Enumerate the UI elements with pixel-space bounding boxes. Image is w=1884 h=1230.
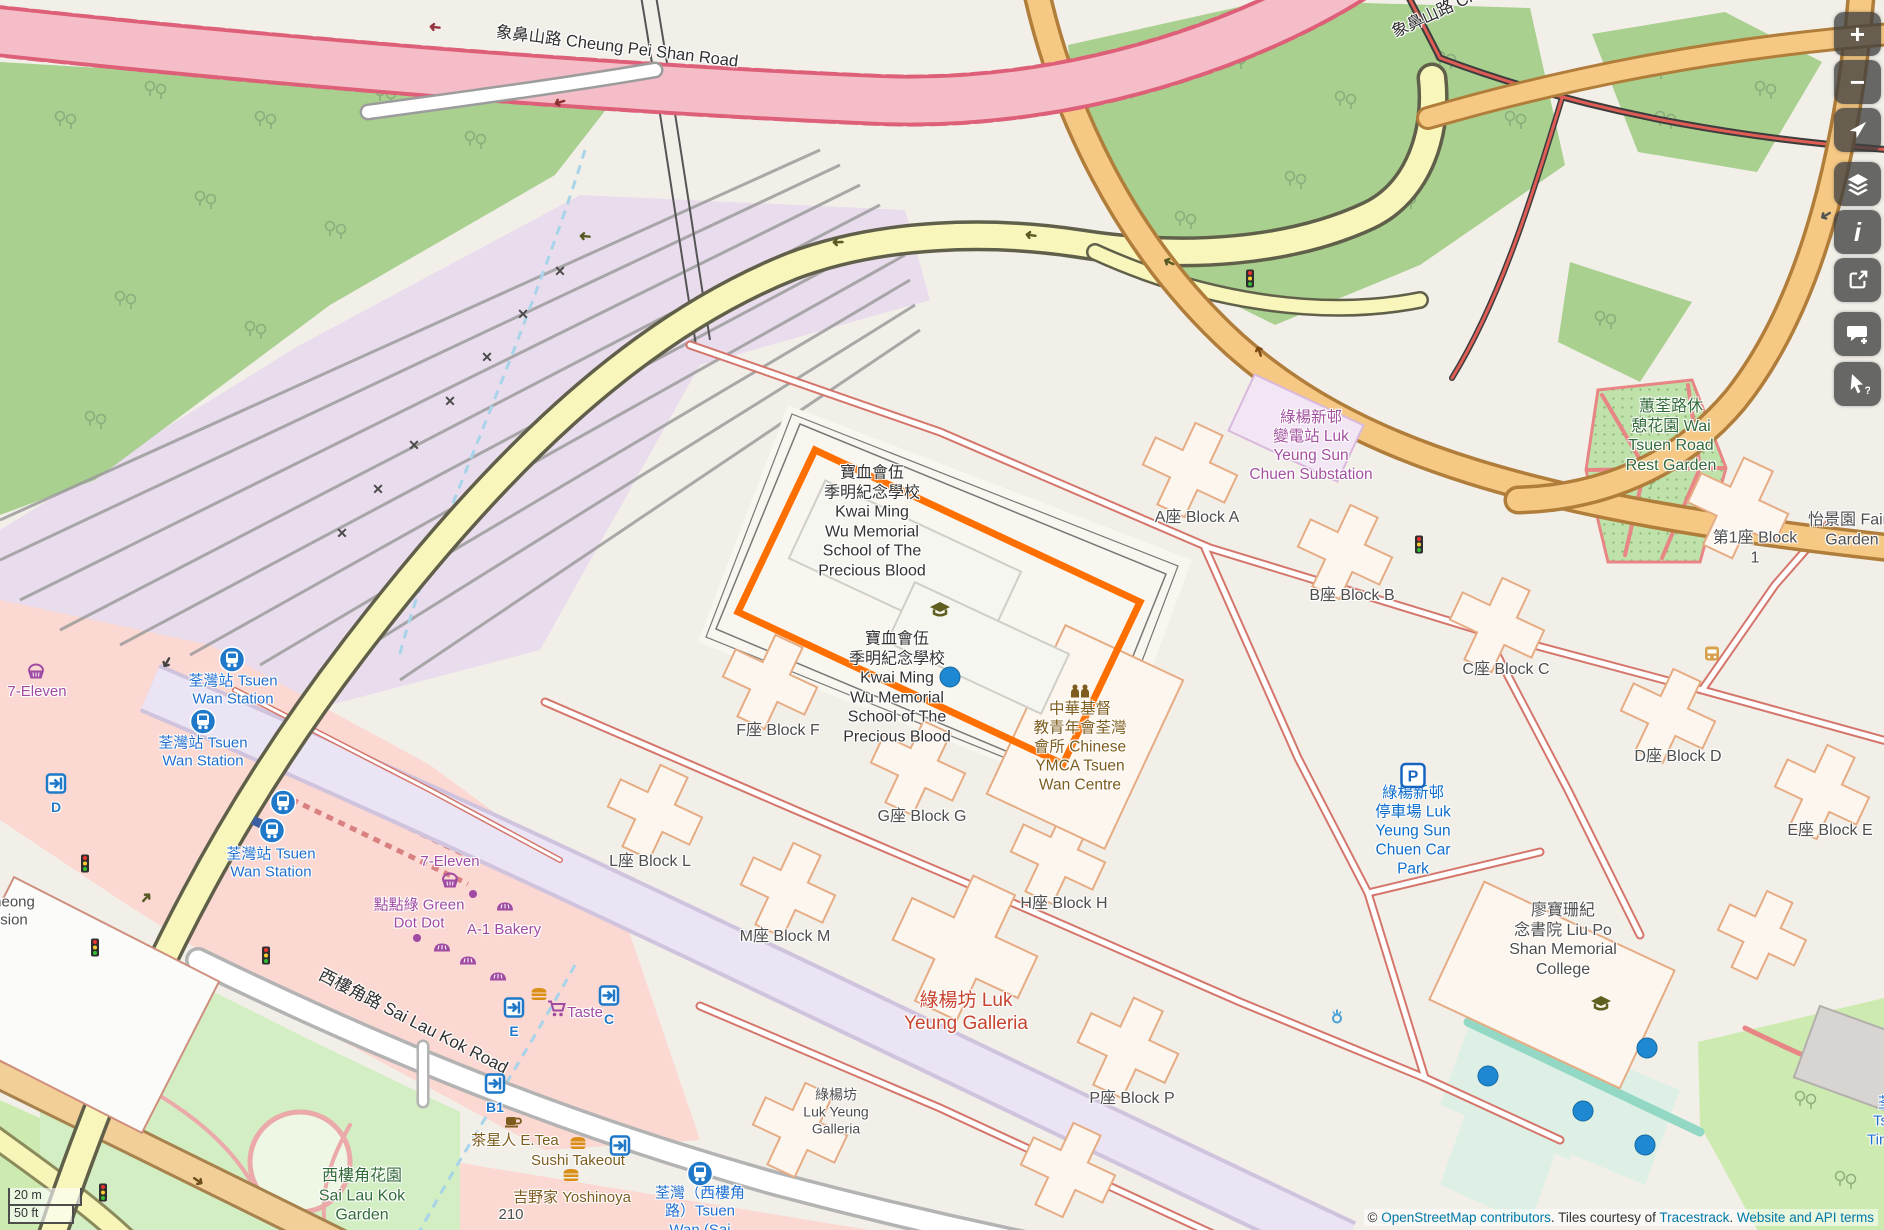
burger-icon: [569, 1136, 588, 1155]
label-yoshinoya: 吉野家 Yoshinoya: [513, 1189, 631, 1207]
label-block-1: 第1座 Block1: [1713, 528, 1797, 567]
label-a1-bakery: A-1 Bakery: [467, 921, 541, 939]
traffic-light-icon: [1415, 535, 1424, 559]
railway-station-icon: [219, 646, 246, 678]
oneway-arrow-icon: ➜: [579, 228, 592, 247]
railway-station-icon: [190, 708, 217, 740]
crossing-icon: ✕: [408, 437, 420, 455]
scale-metric: 20 m: [8, 1188, 82, 1206]
label-luk-yeung-galleria: 綠楊坊 LukYeung Galleria: [904, 989, 1028, 1035]
parking-icon: P: [1400, 762, 1427, 794]
traffic-light-icon: [81, 854, 90, 878]
oneway-arrow-icon: ➜: [1820, 207, 1833, 226]
attribution-middle: . Tiles courtesy of: [1551, 1210, 1660, 1225]
shop-dot-icon: [413, 934, 421, 942]
basket-icon: [26, 663, 46, 686]
label-block-g: G座 Block G: [878, 807, 967, 827]
label-ymca: 中華基督教青年會荃灣會所 ChineseYMCA TsuenWan Centre: [1033, 701, 1126, 796]
oneway-arrow-icon: ➜: [554, 94, 567, 113]
traffic-light-icon: [91, 938, 100, 962]
pitch-dot-icon: [1635, 1135, 1656, 1156]
label-block-h: H座 Block H: [1020, 894, 1107, 914]
pitch-dot-icon: [940, 667, 961, 688]
cart-icon: [546, 1000, 566, 1023]
label-sai-lau-kok-garden: 西樓角花園Sai Lau KokGarden: [319, 1167, 405, 1226]
crossing-icon: ✕: [481, 349, 493, 367]
pitch-dot-icon: [1637, 1038, 1658, 1059]
label-liu-po-shan-college: 廖寶珊紀念書院 Liu PoShan MemorialCollege: [1509, 901, 1617, 979]
label-luk-yeung-galleria-small: 綠楊坊Luk YeungGalleria: [803, 1086, 868, 1137]
label-block-c: C座 Block C: [1462, 660, 1549, 680]
label-car-park: 綠楊新邨停車場 LukYeung SunChuen CarPark: [1375, 785, 1451, 880]
label-block-l: L座 Block L: [609, 852, 691, 872]
label-house-210: 210: [498, 1206, 523, 1224]
scale-control: 20 m 50 ft: [8, 1188, 82, 1224]
svg-text:P: P: [1408, 769, 1419, 786]
label-seven-eleven-west: 7-Eleven: [7, 683, 66, 701]
label-school-label-mid: 寶血會伍季明紀念學校Kwai MingWu MemorialSchool of …: [843, 629, 951, 746]
oneway-arrow-icon: ➜: [832, 234, 845, 253]
label-block-d: D座 Block D: [1634, 747, 1721, 767]
osm-contributors-link[interactable]: OpenStreetMap contributors: [1381, 1210, 1551, 1225]
pitch-dot-icon: [1573, 1101, 1594, 1122]
bakery-icon: [432, 940, 452, 959]
label-e-tea: 茶星人 E.Tea: [471, 1132, 559, 1150]
fountain-icon: [1329, 1008, 1345, 1029]
info-button[interactable]: i: [1834, 210, 1881, 254]
query-features-button[interactable]: ?: [1834, 362, 1881, 406]
entrance-icon: D: [46, 773, 67, 799]
entrance-icon: C: [599, 985, 620, 1011]
oneway-arrow-icon: ➜: [140, 889, 153, 908]
zoom-in-button[interactable]: +: [1834, 12, 1881, 56]
bakery-icon: [458, 953, 478, 972]
share-button[interactable]: [1834, 258, 1881, 302]
openstreetmap-viewport[interactable]: 象鼻山路 Cheung Pei Shan Road象鼻山路 Cheun西樓角路 …: [0, 0, 1884, 1230]
label-seven-eleven-mid: 7-Eleven: [420, 853, 479, 871]
oneway-arrow-icon: ➜: [1025, 227, 1038, 246]
query-cursor-icon: ?: [1846, 372, 1870, 396]
zoom-out-button[interactable]: −: [1834, 60, 1881, 104]
navigation-arrow-icon: [1847, 119, 1869, 141]
entrance-icon: B1: [485, 1073, 506, 1099]
note-icon: [1846, 322, 1870, 346]
locate-button[interactable]: [1834, 108, 1881, 152]
attribution-copyright: ©: [1368, 1210, 1382, 1225]
oneway-arrow-icon: ➜: [192, 1172, 205, 1191]
label-substation: 綠楊新邨變電站 LukYeung SunChuen Substation: [1249, 409, 1372, 485]
label-block-p: P座 Block P: [1089, 1089, 1174, 1109]
attribution-sep: .: [1729, 1210, 1737, 1225]
people-icon: [1068, 684, 1092, 705]
station-square-icon: [253, 818, 262, 827]
oneway-arrow-icon: ➜: [429, 19, 442, 38]
label-wai-tsuen-rest-garden: 蕙荃路休憩花園 WaiTsuen RoadRest Garden: [1626, 397, 1717, 475]
label-block-m: M座 Block M: [740, 927, 831, 947]
cup-icon: [504, 1114, 522, 1134]
burger-icon: [530, 987, 549, 1006]
crossing-icon: ✕: [517, 306, 529, 324]
terms-link[interactable]: Website and API terms: [1737, 1210, 1874, 1225]
school-icon: [929, 601, 951, 623]
label-cut-mansion: heongsion: [0, 894, 35, 931]
label-tsuen-wan-station-1: 荃灣站 TsuenWan Station: [188, 673, 277, 710]
traffic-light-icon: [262, 946, 271, 970]
school-icon: [1590, 995, 1612, 1017]
label-tin-hau: 荃灣TsuenTin Hau: [1867, 1095, 1884, 1150]
oneway-arrow-icon: ➜: [1163, 254, 1176, 273]
railway-station-icon: [259, 817, 286, 849]
tracestrack-link[interactable]: Tracestrack: [1659, 1210, 1729, 1225]
bus-stop-icon: [1704, 646, 1720, 667]
oneway-arrow-icon: ➜: [161, 654, 174, 673]
burger-icon: [562, 1168, 581, 1187]
label-fairview-garden: 怡景園 FairvGarden: [1808, 510, 1884, 549]
basket-icon: [440, 872, 460, 895]
label-school-label-top: 寶血會伍季明紀念學校Kwai MingWu MemorialSchool of …: [818, 463, 926, 580]
label-block-b: B座 Block B: [1309, 586, 1394, 606]
shop-dot-icon: [469, 890, 477, 898]
crossing-icon: ✕: [372, 481, 384, 499]
crossing-icon: ✕: [336, 525, 348, 543]
entrance-icon: [610, 1135, 631, 1161]
scale-imperial: 50 ft: [8, 1206, 74, 1224]
add-note-button[interactable]: [1834, 312, 1881, 356]
pitch-dot-icon: [1478, 1066, 1499, 1087]
label-block-a: A座 Block A: [1155, 508, 1239, 528]
bakery-icon: [495, 899, 515, 918]
label-green-dot-dot: 點點綠 GreenDot Dot: [374, 897, 465, 934]
oneway-arrow-icon: ➜: [1253, 343, 1266, 362]
layers-icon: [1846, 172, 1870, 196]
label-block-e: E座 Block E: [1787, 821, 1872, 841]
crossing-icon: ✕: [444, 393, 456, 411]
share-icon: [1847, 269, 1869, 291]
traffic-light-icon: [1246, 269, 1255, 293]
label-tsuen-wan-station-2: 荃灣站 TsuenWan Station: [158, 735, 247, 772]
svg-text:?: ?: [1864, 385, 1870, 396]
bakery-icon: [488, 969, 508, 988]
label-block-f: F座 Block F: [736, 721, 820, 741]
crossing-icon: ✕: [554, 263, 566, 281]
traffic-light-icon: [99, 1183, 108, 1207]
label-tsuen-wan-station-3: 荃灣站 TsuenWan Station: [226, 846, 315, 883]
layers-button[interactable]: [1834, 162, 1881, 206]
entrance-icon: E: [504, 997, 525, 1023]
attribution: © OpenStreetMap contributors. Tiles cour…: [1364, 1209, 1878, 1226]
railway-station-icon: [687, 1160, 714, 1192]
